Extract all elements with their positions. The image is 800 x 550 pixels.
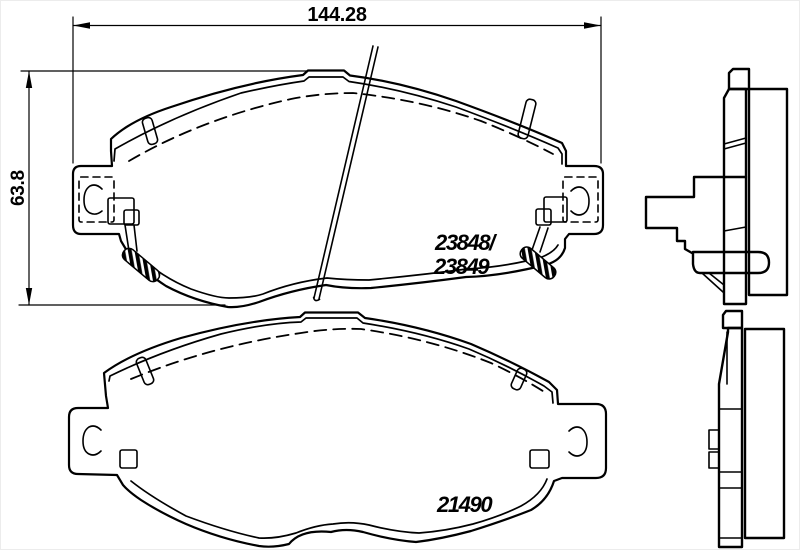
width-dimension-label: 144.28 [307,4,367,26]
upper-pad-part-number-line1: 23848/ [434,230,498,255]
upper-pad-right-ear-details [518,177,598,281]
lower-side-backing-plate [745,329,784,538]
upper-pad-left-ear-clip-hole [84,185,102,214]
upper-pad-part-number-line2: 23849 [433,254,490,279]
lower-side-top-cap [723,311,742,328]
upper-side-hook-links [702,273,724,292]
width-arrow-right [584,22,601,28]
lower-pad-right-guide-pin [510,367,528,391]
lower-pad-left-ear-clip-hole [83,426,101,455]
upper-side-sensor-bracket [646,177,746,253]
height-arrow-top [26,71,32,88]
lower-pad-side-view [709,311,784,547]
lower-pad-left-ear-details [83,426,137,468]
brake-pad-technical-drawing: 144.28 63.8 23848/ 23849 21490 [0,0,800,550]
lower-pad-front-view [69,313,606,547]
height-arrow-bottom [26,288,32,305]
upper-pad-left-abutment-square [108,198,134,224]
lower-pad-right-clip-hole [569,427,587,456]
width-arrow-left [73,22,90,28]
lower-side-friction-strip [719,328,742,547]
lower-side-left-tab-upper [709,430,719,449]
upper-side-sensor-hook [693,252,769,273]
lower-side-left-tab-lower [709,452,719,468]
height-dimension-label: 63.8 [8,170,29,206]
upper-pad-left-sensor-neck [125,225,137,251]
lower-pad-left-abutment-square [120,450,137,468]
upper-pad-right-sensor-neck [532,227,548,252]
upper-side-top-tab [729,69,749,89]
upper-pad-right-ear-clip-hole [571,187,589,215]
upper-pad-left-ear-details [79,177,162,284]
upper-pad-left-wear-tab [120,246,162,284]
lower-pad-part-number: 21490 [436,492,493,517]
lower-side-divisions [719,409,742,538]
upper-pad-left-abutment-square-inner [124,210,139,225]
upper-pad-friction-top-line [114,77,562,164]
dimension-annotations [19,17,601,305]
lower-pad-right-tab-details [530,427,587,468]
upper-pad-friction-bottom-line [134,245,558,298]
drawing-canvas: 144.28 63.8 23848/ 23849 21490 [1,1,800,550]
lower-pad-outline [69,313,606,547]
upper-pad-front-view [73,71,603,308]
lower-pad-right-abutment-square [530,450,549,468]
lower-pad-friction-dashed-line [131,329,546,393]
upper-side-friction-strip [724,89,746,304]
upper-pad-friction-dashed-line [129,93,553,161]
upper-pad-right-guide-pin [517,98,536,139]
upper-pad-side-view [646,69,787,304]
